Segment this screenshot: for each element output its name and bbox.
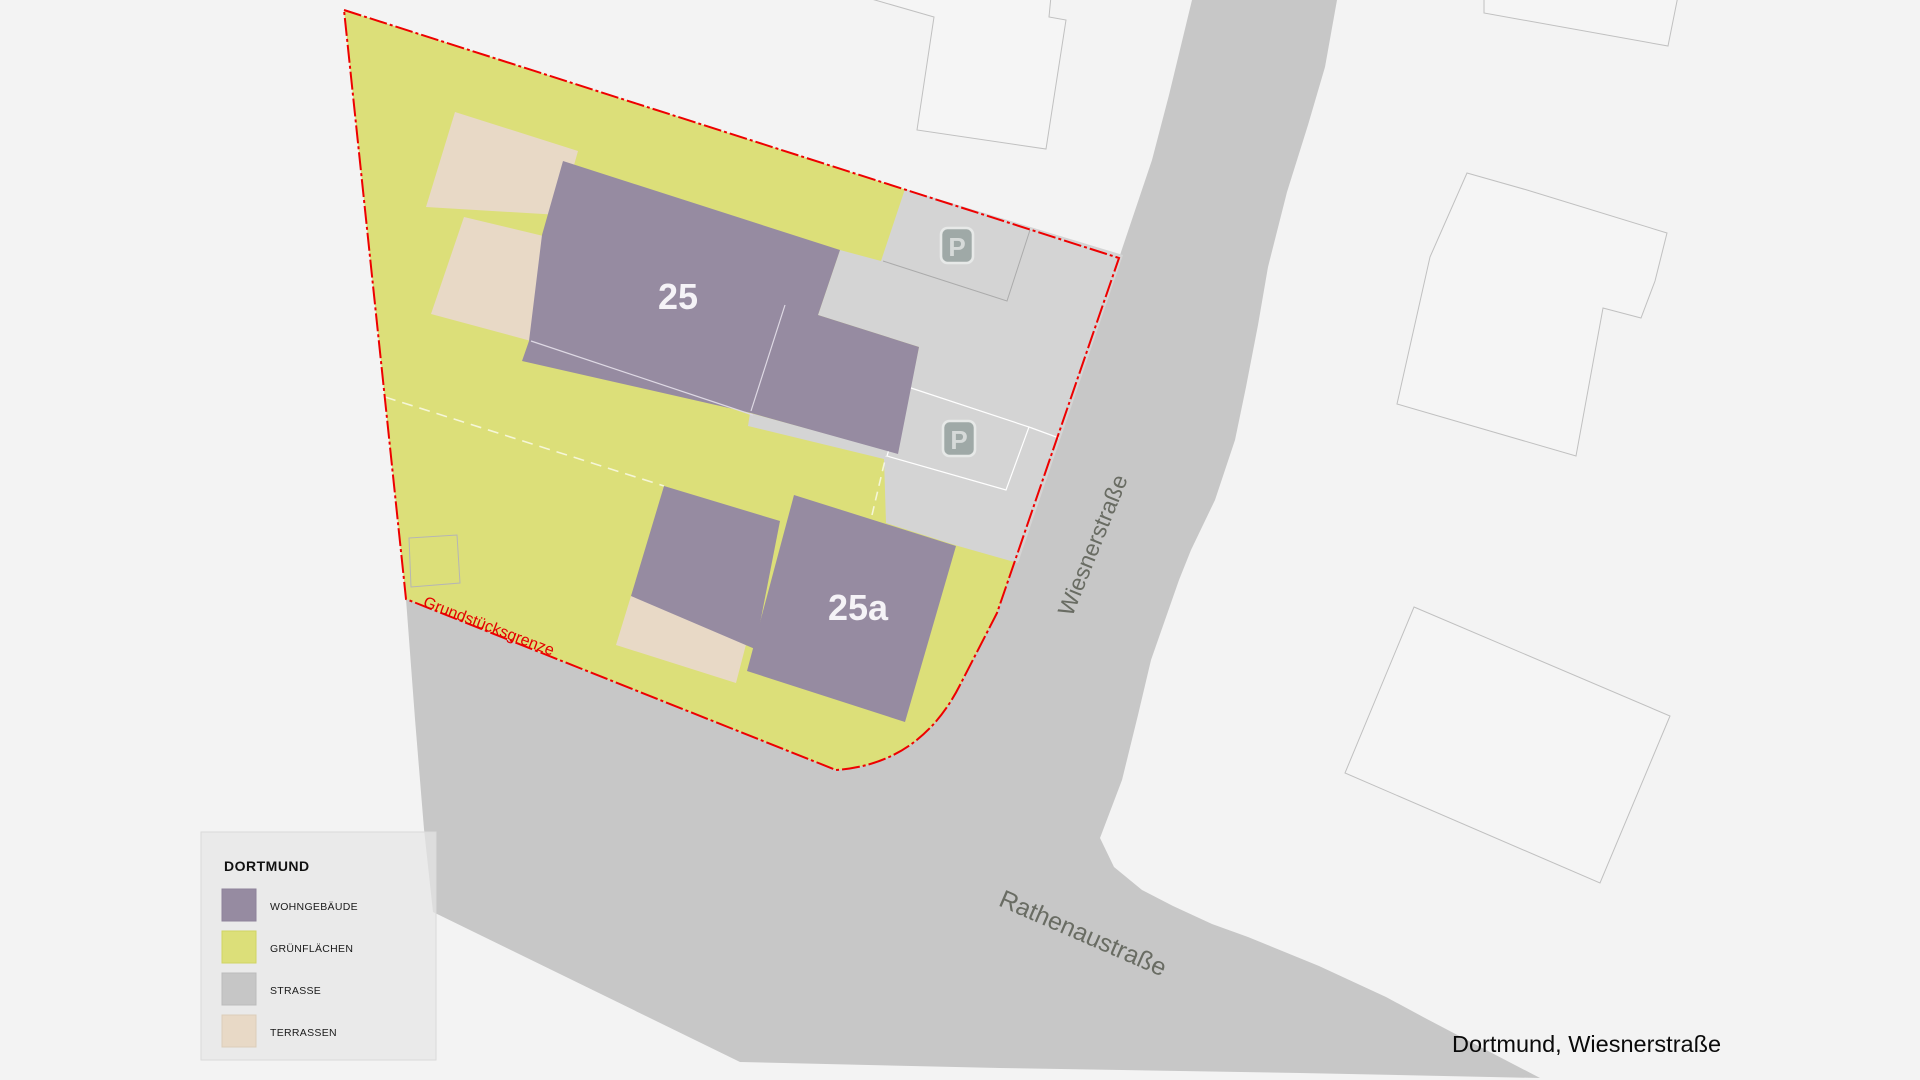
- svg-text:TERRASSEN: TERRASSEN: [270, 1027, 337, 1039]
- svg-text:P: P: [948, 232, 965, 262]
- svg-text:WOHNGEBÄUDE: WOHNGEBÄUDE: [270, 901, 358, 913]
- svg-text:25: 25: [658, 276, 698, 317]
- svg-text:Dortmund, Wiesnerstraße: Dortmund, Wiesnerstraße: [1452, 1031, 1721, 1057]
- svg-text:P: P: [950, 425, 967, 455]
- svg-text:GRÜNFLÄCHEN: GRÜNFLÄCHEN: [270, 943, 353, 955]
- svg-text:25a: 25a: [828, 587, 889, 628]
- svg-text:STRASSE: STRASSE: [270, 985, 321, 997]
- svg-text:DORTMUND: DORTMUND: [224, 858, 310, 874]
